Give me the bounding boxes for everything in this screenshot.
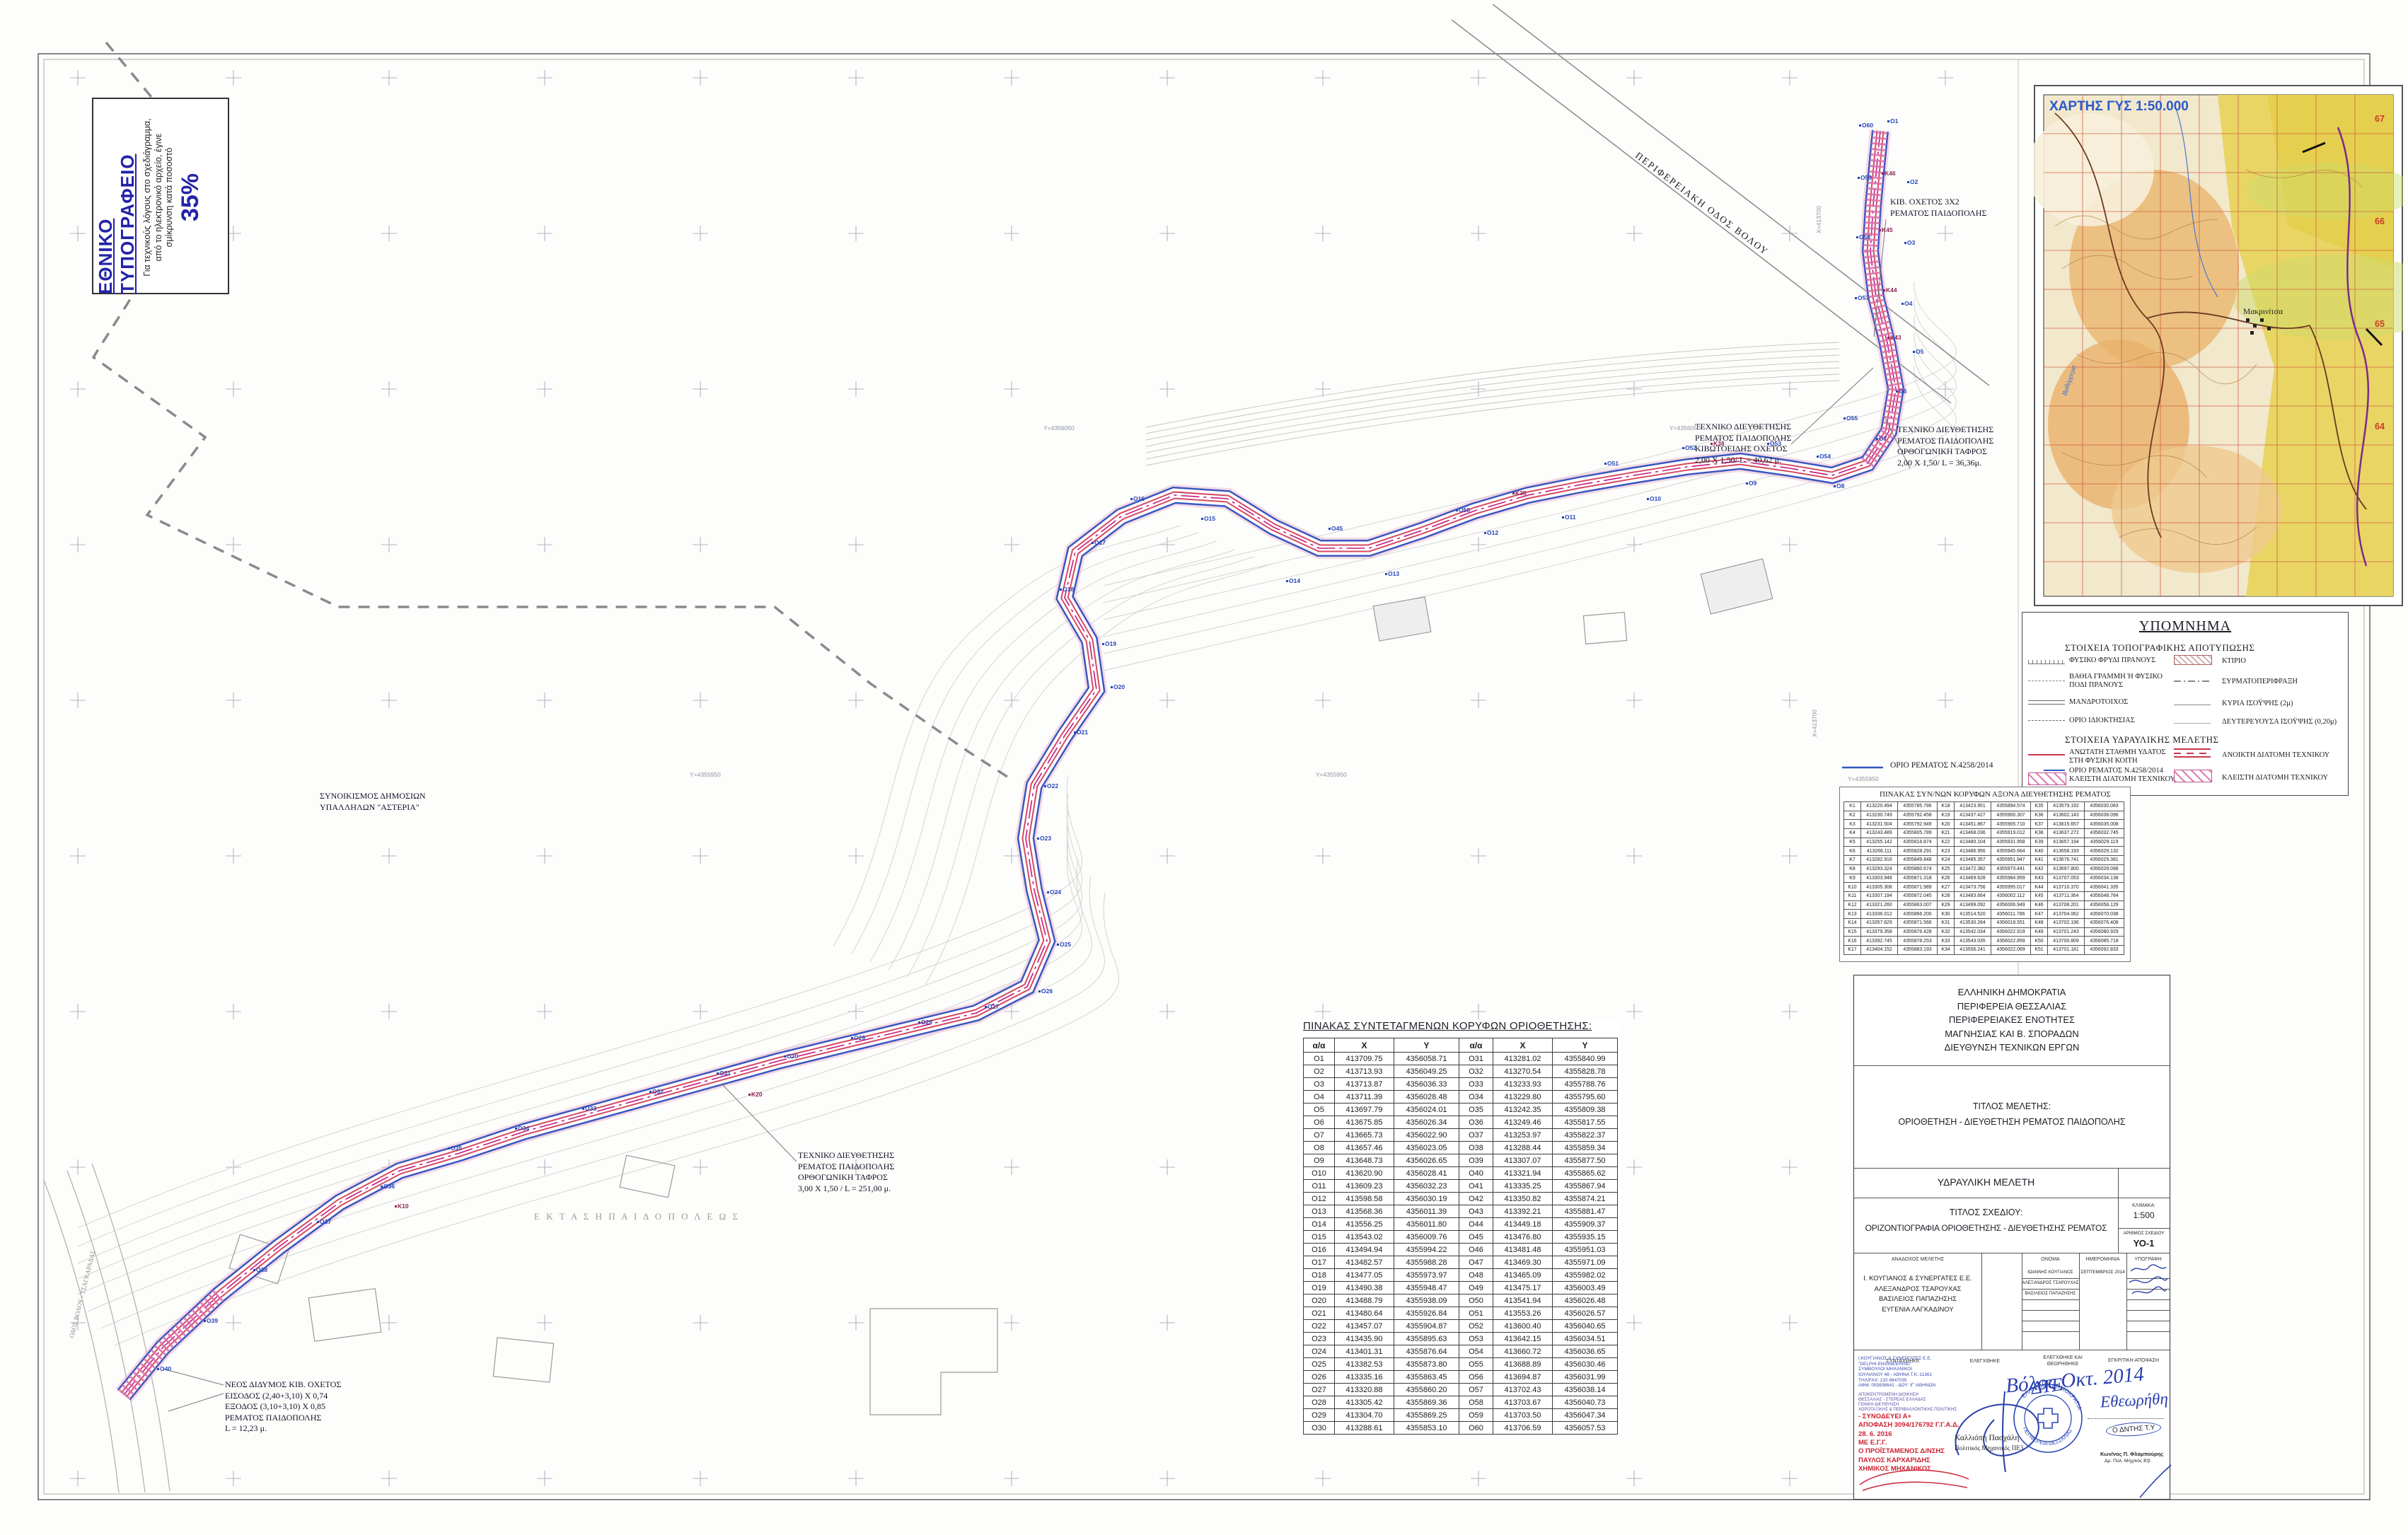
drawing-title-label: ΤΙΤΛΟΣ ΣΧΕΔΙΟΥ: — [1854, 1207, 2118, 1217]
legend: ΥΠΟΜΝΗΜΑ ΣΤΟΙΧΕΙΑ ΤΟΠΟΓΡΑΦΙΚΗΣ ΑΠΟΤΥΠΩΣΗ… — [2022, 612, 2349, 796]
legend-label: ΟΡΙΟ ΡΕΜΑΤΟΣ Ν.4258/2014 — [2069, 767, 2163, 775]
survey-point-K45: K45 — [1879, 226, 1893, 233]
table-row: K1413220.4944355785.786K18413423.9514355… — [1844, 802, 2124, 811]
table-cell: K1 — [1844, 802, 1861, 811]
table-cell: 4355809.38 — [1553, 1104, 1618, 1116]
table-cell: 413568.36 — [1335, 1205, 1394, 1218]
table-cell: K38 — [2031, 829, 2048, 838]
table-cell: 4355863.45 — [1394, 1371, 1459, 1384]
legend-label: ΚΥΡΙΑ ΙΣΟΫΨΗΣ (2μ) — [2222, 700, 2293, 708]
legend-label: ΟΡΙΟ ΙΔΙΟΚΤΗΣΙΑΣ — [2069, 717, 2135, 725]
legend-label: ΣΤΗ ΦΥΣΙΚΗ ΚΟΙΤΗ — [2069, 757, 2138, 765]
table-cell: 413713.93 — [1335, 1065, 1394, 1078]
table-cell: K30 — [1938, 910, 1955, 919]
survey-point-O10: O10 — [1647, 495, 1661, 502]
table-cell: 413710.370 — [2048, 883, 2085, 892]
table-cell: 4356030.083 — [2085, 802, 2124, 811]
survey-point-O34: O34 — [515, 1125, 529, 1132]
grid-coordinate-label: Y=4356050 — [1669, 424, 1701, 431]
inset-place-label: Μακρινίτσα — [2243, 308, 2283, 316]
survey-point-O58: O58 — [1856, 233, 1870, 241]
table-cell: 4356040.73 — [1553, 1396, 1618, 1409]
table-cell: 413615.657 — [2048, 820, 2085, 829]
table-cell: 4355876.64 — [1394, 1345, 1459, 1358]
table-cell: O11 — [1304, 1180, 1335, 1193]
agency-block: ΕΛΛΗΝΙΚΗ ΔΗΜΟΚΡΑΤΙΑΠΕΡΙΦΕΡΕΙΑ ΘΕΣΣΑΛΙΑΣΠ… — [1854, 985, 2170, 1055]
callout-new-twin-culvert: ΝΕΟΣ ΔΙΔΥΜΟΣ ΚΙΒ. ΟΧΕΤΟΣΕΙΣΟΔΟΣ (2,40+3,… — [225, 1379, 341, 1435]
table-cell: 413676.741 — [2048, 856, 2085, 865]
table-cell: 4355919.012 — [1991, 829, 2031, 838]
table-cell: 4355873.80 — [1394, 1358, 1459, 1371]
table-cell: 413600.40 — [1493, 1320, 1553, 1333]
table-cell: 413486.956 — [1955, 847, 1991, 856]
table-cell: 413543.035 — [1955, 937, 1991, 946]
survey-point-O29: O29 — [851, 1034, 865, 1041]
table-cell: 4356030.19 — [1394, 1193, 1459, 1205]
signature-col-label: ΥΠΟΓΡΑΦΗ — [2126, 1257, 2170, 1262]
table-row: O7413665.734356022.90O37413253.974355822… — [1304, 1129, 1618, 1142]
table-cell: K2 — [1844, 811, 1861, 820]
table-cell: 413700.809 — [2048, 937, 2085, 946]
table-cell: O12 — [1304, 1193, 1335, 1205]
table-cell: 4355900.307 — [1991, 811, 2031, 820]
table-cell: 4355931.958 — [1991, 838, 2031, 847]
table-cell: O23 — [1304, 1333, 1335, 1345]
table-cell: 413350.82 — [1493, 1193, 1553, 1205]
table-row: K3413231.5044355792.949K20413451.8674355… — [1844, 820, 2124, 829]
table-cell: 4355822.37 — [1553, 1129, 1618, 1142]
table-cell: 413704.062 — [2048, 910, 2085, 919]
table-cell: 413382.53 — [1335, 1358, 1394, 1371]
table-cell: 413702.43 — [1493, 1384, 1553, 1396]
table-cell: K50 — [2031, 937, 2048, 946]
survey-point-O59: O59 — [1858, 174, 1872, 181]
table-cell: 4355874.21 — [1553, 1193, 1618, 1205]
table-cell: 413449.18 — [1493, 1218, 1553, 1231]
survey-point-K38: K38 — [1711, 440, 1725, 447]
table-cell: O3 — [1304, 1078, 1335, 1091]
legend-section-hydraulic: ΣΤΟΙΧΕΙΑ ΥΔΡΑΥΛΙΚΗΣ ΜΕΛΕΤΗΣ — [2065, 734, 2219, 746]
survey-point-O45: O45 — [1329, 525, 1343, 532]
grid-coordinate-label: Y=4355950 — [1316, 771, 1347, 778]
table-cell: K12 — [1844, 900, 1861, 910]
legend-label: ΣΥΡΜΑΤΟΠΕΡΙΦΡΑΞΗ — [2222, 678, 2298, 686]
survey-point-O39: O39 — [204, 1317, 218, 1324]
table-cell: 413609.23 — [1335, 1180, 1394, 1193]
max-water-level-symbol — [2028, 754, 2065, 755]
col-header: Y — [1553, 1038, 1618, 1053]
grid-coordinate-label: X=413700 — [1815, 206, 1822, 233]
table-cell: O45 — [1459, 1231, 1493, 1244]
table-cell: 413483.664 — [1955, 891, 1991, 900]
table-cell: 413335.16 — [1335, 1371, 1394, 1384]
inset-topographic-map: ΧΑΡΤΗΣ ΓΥΣ 1:50.000 Μακρινίτσα Βαθύρρεμα… — [2034, 85, 2403, 606]
inset-map-title: ΧΑΡΤΗΣ ΓΥΣ 1:50.000 — [2049, 99, 2189, 114]
table-cell: K37 — [2031, 820, 2048, 829]
table-cell: 4355788.76 — [1553, 1078, 1618, 1091]
table-row: K11413307.1944355872.045K28413483.664435… — [1844, 891, 2124, 900]
table-cell: 413457.07 — [1335, 1320, 1394, 1333]
table-cell: O17 — [1304, 1256, 1335, 1269]
table-cell: 413556.241 — [1955, 946, 1991, 955]
handwritten-monogram: ΔΤΕ — [2030, 1374, 2064, 1399]
table-cell: 413694.87 — [1493, 1371, 1553, 1384]
table-cell: 4356026.65 — [1394, 1154, 1459, 1167]
table-cell: 413304.70 — [1335, 1409, 1394, 1422]
approver-pen-stroke — [2136, 1464, 2178, 1499]
table-cell: K3 — [1844, 820, 1861, 829]
survey-point-O38: O38 — [253, 1266, 267, 1273]
table-cell: K48 — [2031, 918, 2048, 927]
table-cell: 413708.201 — [2048, 900, 2085, 910]
table-cell: K23 — [1938, 847, 1955, 856]
table-cell: 4356028.098 — [2085, 864, 2124, 874]
footer-label-checked: ΕΛΕΓΧΘΗΚΕ — [1946, 1359, 2024, 1364]
table-row: K14413357.6294355871.566K31413530.284435… — [1844, 918, 2124, 927]
table-cell: 4355871.989 — [1898, 883, 1938, 892]
table-cell: 4356032.745 — [2085, 829, 2124, 838]
contractor-names: Ι. ΚΟΥΓΙΑΝΟΣ & ΣΥΝΕΡΓΑΤΕΣ Ε.Ε.ΑΛΕΞΑΝΔΡΟΣ… — [1854, 1274, 1981, 1316]
printing-office-title: ΕΘΝΙΚΟ ΤΥΠΟΓΡΑΦΕΙΟ — [95, 100, 139, 294]
table-cell: 413288.44 — [1493, 1142, 1553, 1154]
table-cell: K35 — [2031, 802, 2048, 811]
table-cell: 413648.73 — [1335, 1154, 1394, 1167]
table-cell: 4356023.05 — [1394, 1142, 1459, 1154]
survey-point-O33: O33 — [582, 1105, 596, 1112]
table-cell: 4355881.47 — [1553, 1205, 1618, 1218]
table-cell: 4356048.784 — [2085, 891, 2124, 900]
table-row: K8413293.3244355860.674K25413472.3824355… — [1844, 864, 2124, 874]
table-cell: 413499.092 — [1955, 900, 1991, 910]
legend-label: ΚΛΕΙΣΤΗ ΔΙΑΤΟΜΗ ΤΕΧΝΙΚΟΥ — [2222, 774, 2328, 782]
table-cell: 4355792.949 — [1898, 820, 1938, 829]
drawing-title: ΟΡΙΖΟΝΤΙΟΓΡΑΦΙΑ ΟΡΙΟΘΕΤΗΣΗΣ - ΔΙΕΥΘΕΤΗΣΗ… — [1854, 1223, 2118, 1233]
table-cell: 413530.284 — [1955, 918, 1991, 927]
table-cell: 413703.50 — [1493, 1409, 1553, 1422]
table-cell: 413620.90 — [1335, 1167, 1394, 1180]
table-cell: 4356028.41 — [1394, 1167, 1459, 1180]
table-row: O6413675.854356026.34O36413249.464355817… — [1304, 1116, 1618, 1129]
table-cell: 413637.272 — [2048, 829, 2085, 838]
table-cell: O13 — [1304, 1205, 1335, 1218]
table-cell: 413379.358 — [1861, 927, 1898, 937]
table-cell: O37 — [1459, 1129, 1493, 1142]
table-cell: O25 — [1304, 1358, 1335, 1371]
table-cell: K43 — [2031, 874, 2048, 883]
table-cell: O7 — [1304, 1129, 1335, 1142]
table-cell: O19 — [1304, 1282, 1335, 1294]
table-cell: 4356018.551 — [1991, 918, 2031, 927]
table-cell: K25 — [1938, 864, 1955, 874]
table-cell: 4355951.03 — [1553, 1244, 1618, 1256]
table-cell: K47 — [2031, 910, 2048, 919]
table-cell: 4355853.10 — [1394, 1422, 1459, 1435]
grid-coordinate-label: Y=4356050 — [1043, 424, 1075, 431]
legend-label: ΜΑΝΔΡΟΤΟΙΧΟΣ — [2069, 698, 2128, 707]
table-cell: O31 — [1459, 1053, 1493, 1065]
table-cell: 413242.35 — [1493, 1104, 1553, 1116]
table-cell: 413711.39 — [1335, 1091, 1394, 1104]
table-row: O18413477.054355973.97O48413465.09435598… — [1304, 1269, 1618, 1282]
table-cell: K18 — [1938, 802, 1955, 811]
table-cell: 4355840.99 — [1553, 1053, 1618, 1065]
table-cell: 4356034.51 — [1553, 1333, 1618, 1345]
survey-point-K44: K44 — [1883, 286, 1897, 294]
axis-table-panel: ΠΙΝΑΚΑΣ ΣΥΝ/ΝΩΝ ΚΟΡΥΦΩΝ ΑΞΟΝΑ ΔΙΕΥΘΕΤΗΣΗ… — [1839, 787, 2131, 962]
table-cell: 413642.15 — [1493, 1333, 1553, 1345]
stream-limit-symbol — [2044, 770, 2065, 771]
table-cell: O58 — [1459, 1396, 1493, 1409]
table-row: O10413620.904356028.41O40413321.94435586… — [1304, 1167, 1618, 1180]
table-cell: K41 — [2031, 856, 2048, 865]
legend-label: ΑΝΩΤΑΤΗ ΣΤΑΘΜΗ ΥΔΑΤΟΣ — [2069, 748, 2166, 756]
table-cell: 4356006.949 — [1991, 900, 2031, 910]
table-cell: K16 — [1844, 937, 1861, 946]
axis-coordinates-table: K1413220.4944355785.786K18413423.9514355… — [1843, 801, 2124, 955]
table-cell: K26 — [1938, 874, 1955, 883]
table-row: K15413379.3584355876.428K32413542.034435… — [1844, 927, 2124, 937]
table-cell: 4356011.786 — [1991, 910, 2031, 919]
table-cell: 413665.73 — [1335, 1129, 1394, 1142]
table-cell: 413468.036 — [1955, 829, 1991, 838]
survey-point-O19: O19 — [1102, 640, 1116, 647]
table-row: O2413713.934356049.25O32413270.544355828… — [1304, 1065, 1618, 1078]
table-cell: 413490.38 — [1335, 1282, 1394, 1294]
table-cell: 413697.79 — [1335, 1104, 1394, 1116]
scale-value: 1:500 — [2118, 1210, 2170, 1220]
legend-label: ΑΝΟΙΚΤΗ ΔΙΑΤΟΜΗ ΤΕΧΝΙΚΟΥ — [2222, 751, 2329, 760]
table-cell: 413220.494 — [1861, 802, 1898, 811]
contractor-label: ΑΝΑΔΟΧΟΣ ΜΕΛΕΤΗΣ — [1854, 1257, 1981, 1262]
table-cell: 413423.951 — [1955, 802, 1991, 811]
table-cell: 4355935.15 — [1553, 1231, 1618, 1244]
table-cell: 4355948.47 — [1394, 1282, 1459, 1294]
table-cell: 413675.85 — [1335, 1116, 1394, 1129]
table-cell: 413305.308 — [1861, 883, 1898, 892]
table-row: K6413266.1114355828.291K23413486.9564355… — [1844, 847, 2124, 856]
table-cell: O49 — [1459, 1282, 1493, 1294]
table-row: K12413321.2604355863.007K29413499.092435… — [1844, 900, 2124, 910]
margin-stream-limit-label: ΟΡΙΟ ΡΕΜΑΤΟΣ Ν.4258/2014 — [1890, 761, 1993, 770]
table-cell: 4355865.62 — [1553, 1167, 1618, 1180]
survey-point-O22: O22 — [1044, 782, 1058, 789]
table-cell: O8 — [1304, 1142, 1335, 1154]
table-cell: O53 — [1459, 1333, 1493, 1345]
table-cell: 413579.192 — [2048, 802, 2085, 811]
table-cell: 413541.94 — [1493, 1294, 1553, 1307]
table-cell: 4356022.90 — [1394, 1129, 1459, 1142]
table-row: O13413568.364356011.39O43413392.21435588… — [1304, 1205, 1618, 1218]
table-cell: 4356058.71 — [1394, 1053, 1459, 1065]
table-cell: 413542.034 — [1955, 927, 1991, 937]
table-cell: 4356038.096 — [2085, 811, 2124, 820]
survey-point-O9: O9 — [1746, 480, 1756, 487]
table-cell: K17 — [1844, 946, 1861, 955]
table-cell: K24 — [1938, 856, 1955, 865]
table-cell: 4356076.408 — [2085, 918, 2124, 927]
table-row: K2413230.7494355792.458K19413437.4274355… — [1844, 811, 2124, 820]
table-cell: 4356085.718 — [2085, 937, 2124, 946]
table-cell: 4356022.069 — [1991, 946, 2031, 955]
table-cell: 4356035.008 — [2085, 820, 2124, 829]
table-cell: O5 — [1304, 1104, 1335, 1116]
table-cell: K19 — [1938, 811, 1955, 820]
table-row: O15413543.024356009.76O45413476.80435593… — [1304, 1231, 1618, 1244]
table-cell: O21 — [1304, 1307, 1335, 1320]
survey-point-O1: O1 — [1887, 117, 1898, 124]
table-row: O11413609.234356032.23O41413335.25435586… — [1304, 1180, 1618, 1193]
table-cell: 4356080.929 — [2085, 927, 2124, 937]
survey-point-O14: O14 — [1286, 577, 1300, 584]
table-cell: 413469.30 — [1493, 1256, 1553, 1269]
table-cell: 4356058.129 — [2085, 900, 2124, 910]
table-cell: 413543.02 — [1335, 1231, 1394, 1244]
table-cell: 4356009.76 — [1394, 1231, 1459, 1244]
legend-label: ΚΤΙΡΙΟ — [2222, 657, 2246, 666]
table-cell: 413477.05 — [1335, 1269, 1394, 1282]
table-cell: 413231.504 — [1861, 820, 1898, 829]
survey-point-O2: O2 — [1907, 178, 1918, 185]
table-cell: 4356026.34 — [1394, 1116, 1459, 1129]
table-cell: 413288.61 — [1335, 1422, 1394, 1435]
table-cell: 4355869.36 — [1394, 1396, 1459, 1409]
table-cell: 4356029.381 — [2085, 856, 2124, 865]
table-cell: K33 — [1938, 937, 1955, 946]
table-row: K10413305.3084355871.989K27413473.756435… — [1844, 883, 2124, 892]
table-cell: 413404.152 — [1861, 946, 1898, 955]
table-cell: 4356034.138 — [2085, 874, 2124, 883]
table-cell: 413494.94 — [1335, 1244, 1394, 1256]
table-cell: K34 — [1938, 946, 1955, 955]
engineer-name: Καλλιόπη Πασχάλη — [1955, 1434, 2019, 1442]
table-row: O16413494.944355994.22O46413481.48435595… — [1304, 1244, 1618, 1256]
approver-name: Κων/νος Π. Φλαμπούρης — [2100, 1451, 2163, 1457]
table-row: O3413713.874356036.33O33413233.934355788… — [1304, 1078, 1618, 1091]
survey-point-O37: O37 — [317, 1218, 331, 1225]
table-cell: 4355849.848 — [1898, 856, 1938, 865]
study-title: ΟΡΙΟΘΕΤΗΣΗ - ΔΙΕΥΘΕΤΗΣΗ ΡΕΜΑΤΟΣ ΠΑΙΔΟΠΟΛ… — [1854, 1117, 2170, 1127]
table-row: O21413480.644355926.84O51413553.26435602… — [1304, 1307, 1618, 1320]
callout-box-culvert-3x2: ΚΙΒ. ΟΧΕΤΟΣ 3Χ2ΡΕΜΑΤΟΣ ΠΑΙΔΟΠΟΛΗΣ — [1890, 197, 1986, 219]
survey-point-O5: O5 — [1913, 348, 1923, 355]
table-cell: O9 — [1304, 1154, 1335, 1167]
survey-point-O16: O16 — [1130, 495, 1145, 502]
table-cell: 4355785.786 — [1898, 802, 1938, 811]
table-row: O26413335.164355863.45O56413694.87435603… — [1304, 1371, 1618, 1384]
legend-label: ΠΟΔΙ ΠΡΑΝΟΥΣ — [2069, 681, 2123, 689]
table-cell: 413701.181 — [2048, 946, 2085, 955]
col-header: X — [1335, 1038, 1394, 1053]
legend-label: ΦΥΣΙΚΟ ΦΡΥΔΙ ΠΡΑΝΟΥΣ — [2069, 656, 2155, 665]
legend-label: ΚΛΕΙΣΤΗ ΔΙΑΤΟΜΗ ΤΕΧΝΙΚΟΥ — [2069, 775, 2175, 783]
closed-section-symbol-right — [2174, 770, 2212, 782]
table-cell: 4355860.20 — [1394, 1384, 1459, 1396]
table-cell: 413485.357 — [1955, 856, 1991, 865]
table-cell: 413229.80 — [1493, 1091, 1553, 1104]
table-cell: O33 — [1459, 1078, 1493, 1091]
printing-office-stamp: ΕΘΝΙΚΟ ΤΥΠΟΓΡΑΦΕΙΟ Για τεχνικούς λόγους … — [92, 98, 229, 294]
name-col-label: ΟΝΟΜΑ — [2022, 1257, 2079, 1262]
delineation-table-panel: ΠΙΝΑΚΑΣ ΣΥΝΤΕΤΑΓΜΕΝΩΝ ΚΟΡΥΦΩΝ ΟΡΙΟΘΕΤΗΣΗ… — [1300, 1020, 1621, 1435]
table-cell: 413451.867 — [1955, 820, 1991, 829]
callout-tech-rect-ditch-sw: ΤΕΧΝΙΚΟ ΔΙΕΥΘΕΤΗΣΗΣΡΕΜΑΤΟΣ ΠΑΙΔΟΠΟΛΗΣΟΡΘ… — [798, 1150, 894, 1194]
table-cell: 413658.193 — [2048, 847, 2085, 856]
table-cell: 413270.54 — [1493, 1065, 1553, 1078]
survey-point-K43: K43 — [1887, 334, 1901, 341]
table-row: O5413697.794356024.01O35413242.354355809… — [1304, 1104, 1618, 1116]
signature-scribbles — [2128, 1263, 2169, 1305]
table-cell: 4356070.038 — [2085, 910, 2124, 919]
table-cell: 413688.89 — [1493, 1358, 1553, 1371]
table-cell: K4 — [1844, 829, 1861, 838]
table-cell: K44 — [2031, 883, 2048, 892]
table-cell: O4 — [1304, 1091, 1335, 1104]
col-header: α/α — [1459, 1038, 1493, 1053]
table-cell: K13 — [1844, 910, 1861, 919]
table-cell: 413706.59 — [1493, 1422, 1553, 1435]
table-row: O29413304.704355869.25O59413703.50435604… — [1304, 1409, 1618, 1422]
table-cell: 413243.489 — [1861, 829, 1898, 838]
table-cell: K21 — [1938, 829, 1955, 838]
table-cell: 4355926.84 — [1394, 1307, 1459, 1320]
table-cell: 413401.31 — [1335, 1345, 1394, 1358]
table-cell: 4356031.99 — [1553, 1371, 1618, 1384]
table-row: O9413648.734356026.65O39413307.074355877… — [1304, 1154, 1618, 1167]
table-cell: 413392.21 — [1493, 1205, 1553, 1218]
survey-point-O36: O36 — [381, 1183, 395, 1190]
table-cell: O55 — [1459, 1358, 1493, 1371]
table-cell: 413707.053 — [2048, 874, 2085, 883]
table-cell: O46 — [1459, 1244, 1493, 1256]
table-row: O22413457.074355904.87O52413600.40435604… — [1304, 1320, 1618, 1333]
scale-label: ΚΛΙΜΑΚΑ: — [2118, 1203, 2170, 1208]
table-cell: K22 — [1938, 838, 1955, 847]
table-cell: K29 — [1938, 900, 1955, 910]
table-cell: 4356011.80 — [1394, 1218, 1459, 1231]
survey-point-O15: O15 — [1201, 515, 1215, 522]
table-cell: 413307.194 — [1861, 891, 1898, 900]
survey-point-O28: O28 — [918, 1019, 932, 1026]
table-cell: O59 — [1459, 1409, 1493, 1422]
table-cell: 4355904.87 — [1394, 1320, 1459, 1333]
table-cell: 4355792.458 — [1898, 811, 1938, 820]
table-cell: 413553.26 — [1493, 1307, 1553, 1320]
table-cell: 4355805.789 — [1898, 829, 1938, 838]
table-cell: 4355828.291 — [1898, 847, 1938, 856]
survey-point-K20: K20 — [748, 1091, 763, 1098]
survey-point-O40: O40 — [157, 1365, 171, 1372]
table-row: O28413305.424355869.36O58413703.67435604… — [1304, 1396, 1618, 1409]
table-cell: O60 — [1459, 1422, 1493, 1435]
table-cell: 413230.749 — [1861, 811, 1898, 820]
svg-text:64: 64 — [2375, 422, 2385, 431]
secondary-contour-symbol — [2174, 723, 2211, 724]
table-cell: 413357.629 — [1861, 918, 1898, 927]
table-row: K17413404.1524355883.193K34413556.241435… — [1844, 946, 2124, 955]
survey-point-O13: O13 — [1385, 570, 1399, 577]
open-section-symbol — [2174, 748, 2211, 758]
survey-point-O3: O3 — [1904, 239, 1915, 246]
table-row: O24413401.314355876.64O54413660.72435603… — [1304, 1345, 1618, 1358]
legend-label: ΔΕΥΤΕΡΕΥΟΥΣΑ ΙΣΟΫΨΗΣ (0,20μ) — [2222, 718, 2337, 726]
survey-point-O23: O23 — [1037, 835, 1051, 842]
table-cell: 413255.142 — [1861, 838, 1898, 847]
printing-office-note: Για τεχνικούς λόγους στο σχεδιάγραμμα,απ… — [142, 118, 175, 276]
table-cell: O6 — [1304, 1116, 1335, 1129]
table-cell: 413556.25 — [1335, 1218, 1394, 1231]
sign-date: ΣΕΠΤΕΜΒΡΙΟΣ 2014 — [2079, 1270, 2126, 1275]
table-cell: 413602.143 — [2048, 811, 2085, 820]
